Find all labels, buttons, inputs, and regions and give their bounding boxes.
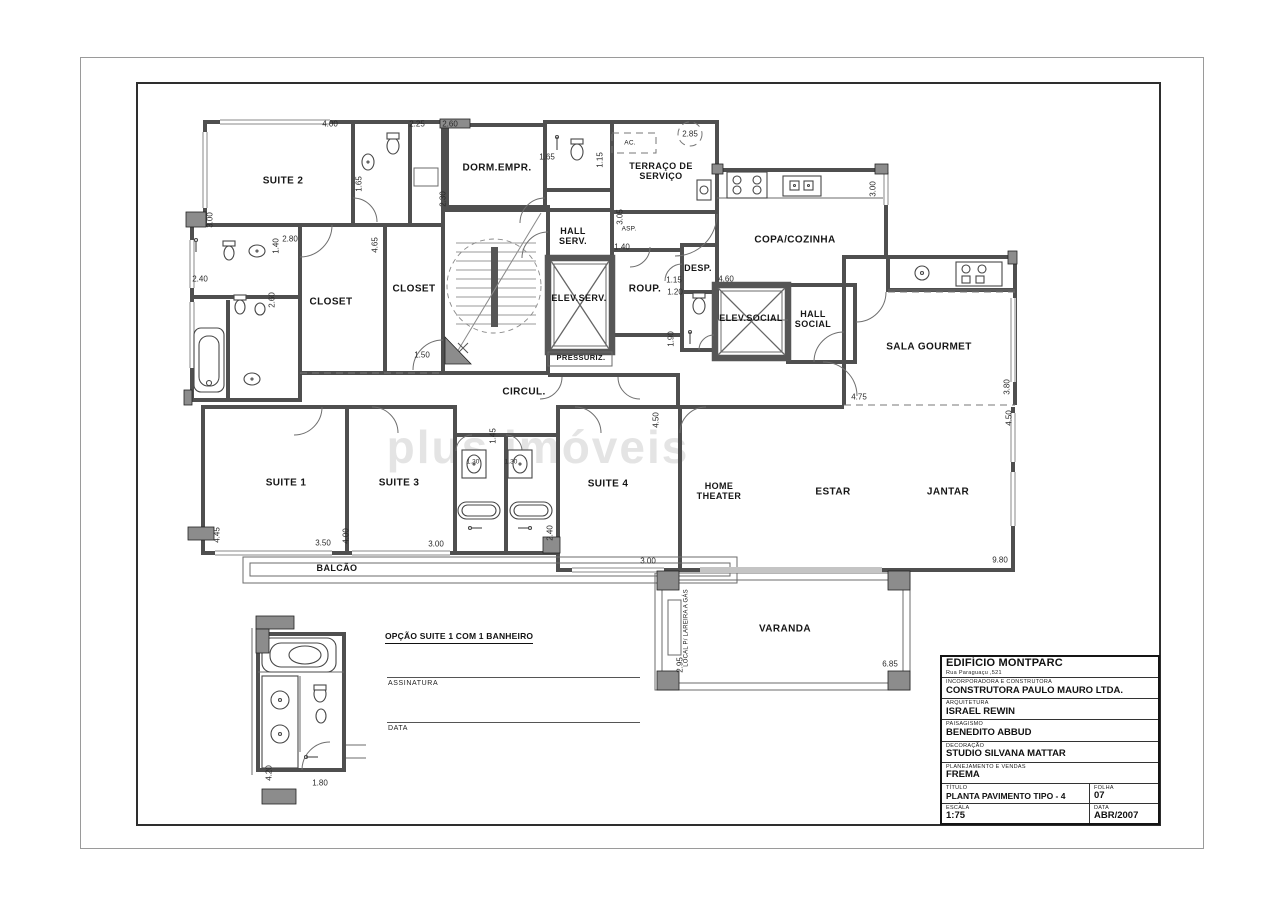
room-label-copa_cozinha: COPA/COZINHA — [754, 235, 835, 246]
room-label-roup: ROUP. — [629, 284, 661, 295]
titulo-value: PLANTA PAVIMENTO TIPO - 4 SUÍTES — [946, 791, 1085, 804]
room-label-closet_a: CLOSET — [310, 297, 353, 308]
room-label-elev_social: ELEV.SOCIAL — [719, 314, 783, 324]
room-label-balcao: BALCÃO — [314, 564, 361, 574]
dimension-label: 2.85 — [682, 130, 698, 139]
dimension-label: 3.50 — [315, 539, 331, 548]
dimension-label: 1.15 — [596, 152, 605, 168]
title-block: EDIFÍCIO MONTPARC Rua Paraguaçu ,521 INC… — [940, 655, 1160, 825]
room-label-home_theater: HOME THEATER — [689, 482, 749, 502]
title-block-row: INCORPORADORA E CONSTRUTORA CONSTRUTORA … — [942, 678, 1158, 699]
dimension-label: 2.40 — [546, 525, 555, 541]
room-label-estar: ESTAR — [815, 487, 850, 498]
data-value: ABR/2007 — [1094, 811, 1154, 822]
title-block-row: PAISAGISMO BENEDITO ABBUD — [942, 720, 1158, 741]
fixtures — [194, 133, 1002, 768]
room-label-suite3: SUITE 3 — [379, 478, 420, 489]
dimension-label: 4.60 — [718, 275, 734, 284]
dimension-label: 1.20 — [667, 288, 683, 297]
dimension-label: 4.75 — [851, 393, 867, 402]
dimension-label: 1.45 — [489, 428, 498, 444]
detail-option-title: OPÇÃO SUITE 1 COM 1 BANHEIRO — [385, 631, 533, 644]
dimension-label: 1.30 — [505, 459, 518, 466]
dimension-label: 2.60 — [268, 292, 277, 308]
room-label-varanda: VARANDA — [759, 624, 811, 635]
dimension-label: 4.00 — [322, 120, 338, 129]
row-value: FREMA — [946, 770, 1154, 781]
room-label-lareira: LOCAL P/ LAREIRA A GÁS — [684, 589, 691, 667]
titulo-label: TÍTULO — [946, 785, 1085, 792]
room-label-suite4: SUITE 4 — [588, 479, 629, 490]
dimension-label: 4.50 — [1005, 410, 1014, 426]
dimension-label: 3.00 — [206, 212, 215, 228]
dimension-label: 1.15 — [666, 276, 682, 285]
dimension-label: 4.45 — [213, 527, 222, 543]
title-block-row: DECORAÇÃO STUDIO SILVANA MATTAR — [942, 742, 1158, 763]
dimension-label: 3.00 — [869, 181, 878, 197]
dimension-label: 1.65 — [539, 153, 555, 162]
pillars — [184, 119, 1017, 804]
building-name: EDIFÍCIO MONTPARC — [946, 658, 1154, 670]
dimension-label: 1.40 — [272, 238, 281, 254]
title-block-titulo-row: TÍTULO PLANTA PAVIMENTO TIPO - 4 SUÍTES … — [942, 784, 1158, 804]
dimension-label: 3.80 — [1003, 379, 1012, 395]
dimension-label: 2.25 — [409, 120, 425, 129]
drawing-sheet: plus imóveis — [0, 0, 1280, 905]
dimension-label: 2.95 — [676, 657, 685, 673]
dimension-label: 3.05 — [616, 209, 625, 225]
escala-label: ESCALA — [946, 805, 1085, 812]
room-label-jantar: JANTAR — [927, 487, 969, 498]
room-label-circul: CIRCUL. — [502, 387, 545, 398]
signature-label: ASSINATURA — [388, 680, 438, 687]
title-block-escala-row: ESCALA 1:75 DATA ABR/2007 — [942, 804, 1158, 823]
dimension-label: 6.85 — [882, 660, 898, 669]
escala-value: 1:75 — [946, 811, 1085, 822]
dimension-label: 1.40 — [614, 243, 630, 252]
dimension-label: 1.65 — [355, 176, 364, 192]
row-value: ISRAEL REWIN — [946, 707, 1154, 718]
room-label-pressuriz: PRESSURIZ. — [556, 354, 605, 362]
dimension-label: 3.00 — [428, 540, 444, 549]
room-label-desp: DESP. — [684, 264, 712, 274]
room-label-hall_social: HALL SOCIAL — [789, 310, 837, 330]
dimension-label: 2.60 — [442, 120, 458, 129]
date-line — [387, 722, 640, 723]
dimension-label: 2.40 — [192, 275, 208, 284]
room-label-suite2: SUITE 2 — [263, 176, 304, 187]
date-label: DATA — [388, 725, 408, 732]
room-label-terraco: TERRAÇO DE SERVIÇO — [619, 162, 703, 182]
titulo-cell: TÍTULO PLANTA PAVIMENTO TIPO - 4 SUÍTES — [942, 784, 1089, 803]
dimension-label: 1.80 — [312, 779, 328, 788]
data-cell: DATA ABR/2007 — [1089, 804, 1158, 823]
row-value: STUDIO SILVANA MATTAR — [946, 749, 1154, 760]
room-label-suite1: SUITE 1 — [266, 478, 307, 489]
dimension-label: 1.90 — [667, 331, 676, 347]
title-block-row: PLANEJAMENTO E VENDAS FREMA — [942, 763, 1158, 784]
dimension-label: 1.50 — [414, 351, 430, 360]
dimension-label: 4.00 — [342, 528, 351, 544]
folha-value: 07 — [1094, 791, 1154, 802]
folha-cell: FOLHA 07 — [1089, 784, 1158, 803]
room-label-sala_gourmet: SALA GOURMET — [886, 342, 972, 353]
escala-cell: ESCALA 1:75 — [942, 804, 1089, 823]
dimension-label: 1.30 — [467, 459, 480, 466]
stair — [447, 213, 541, 362]
building-address: Rua Paraguaçu ,521 — [946, 670, 1154, 677]
dimension-label: 4.65 — [371, 237, 380, 253]
dimension-label: 4.20 — [265, 765, 274, 781]
row-value: BENEDITO ABBUD — [946, 728, 1154, 739]
room-label-ac: AC. — [624, 139, 635, 146]
room-label-closet_b: CLOSET — [393, 284, 436, 295]
room-label-elev_serv: ELEV.SERV. — [551, 294, 606, 304]
dimension-label: 2.30 — [439, 191, 448, 207]
row-value: CONSTRUTORA PAULO MAURO LTDA. — [946, 686, 1154, 697]
signature-line — [387, 677, 640, 678]
room-label-dorm_empr: DORM.EMPR. — [463, 163, 532, 174]
title-block-building-row: EDIFÍCIO MONTPARC Rua Paraguaçu ,521 — [942, 657, 1158, 678]
title-block-row: ARQUITETURA ISRAEL REWIN — [942, 699, 1158, 720]
dimension-label: 4.50 — [652, 412, 661, 428]
room-label-asp: ASP. — [622, 225, 637, 232]
dimension-label: 9.80 — [992, 556, 1008, 565]
room-label-hall_serv: HALL SERV. — [553, 227, 593, 247]
dimension-label: 2.80 — [282, 235, 298, 244]
dimension-label: 3.00 — [640, 557, 656, 566]
